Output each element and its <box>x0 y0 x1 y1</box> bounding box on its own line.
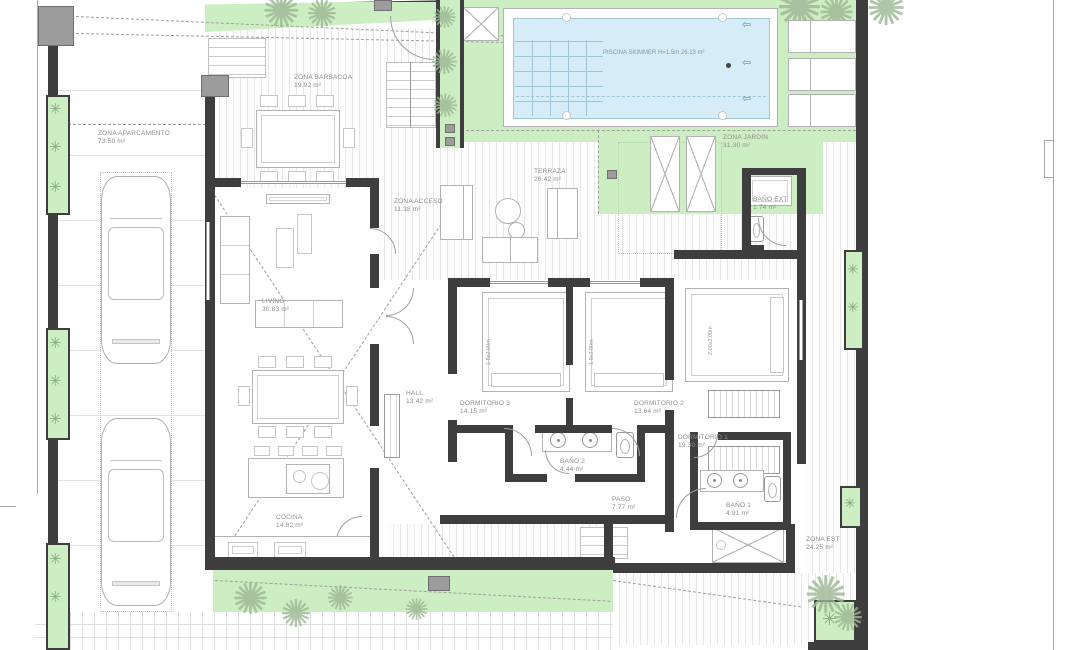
car <box>101 176 171 364</box>
plant-icon: ✳ <box>49 374 62 389</box>
label-dormitorio-1: DORMITORIO 119.30 m² <box>678 434 728 450</box>
palm-icon: ✺ <box>262 0 301 34</box>
house-wall-west <box>205 88 215 565</box>
plant-icon: ✳ <box>847 262 859 276</box>
label-cocina: COCINA14.82 m² <box>276 514 303 530</box>
sun-lounger-crossed <box>686 136 716 212</box>
palm-icon: ✺ <box>232 578 269 622</box>
utility-box-small <box>445 137 455 146</box>
wall <box>370 344 379 426</box>
entry-door-arc <box>386 288 414 316</box>
outdoor-shower-pad <box>463 7 499 41</box>
window <box>590 281 640 284</box>
bano2-wall <box>575 474 645 482</box>
staircase <box>386 62 436 128</box>
cooktop-burner <box>311 472 329 490</box>
chair <box>258 426 276 438</box>
chair <box>286 356 304 368</box>
south-wall-middle <box>440 515 670 524</box>
bedroom-north-wall <box>548 278 590 287</box>
pool-steps <box>515 40 603 116</box>
utility-box <box>38 6 74 46</box>
sheet-border-left <box>37 0 38 494</box>
palm-icon: ✺ <box>432 90 459 122</box>
utility-box-small <box>428 576 450 591</box>
dining-table <box>252 370 344 424</box>
bedroom-south-wall <box>640 425 674 433</box>
chair <box>314 426 332 438</box>
staircase-rail <box>410 62 411 128</box>
bed-dimension: 1.8x2.00m <box>486 339 492 365</box>
bano2-wall <box>505 474 547 482</box>
label-hall: HALL13.42 m² <box>406 390 433 406</box>
palm-icon: ✺ <box>432 4 457 34</box>
cooktop-burner <box>293 470 306 483</box>
access-ramp <box>35 612 613 650</box>
boundary-wall-corner <box>808 642 868 650</box>
car <box>101 418 171 606</box>
pool-lane-dashed <box>516 96 766 97</box>
bed-dormitorio-3: 1.8x2.00m <box>482 292 570 392</box>
utility-box-small <box>374 0 392 11</box>
chair <box>343 128 355 148</box>
armchair <box>297 214 312 254</box>
label-barbacoa: ZONA BARBACOA19.92 m² <box>294 74 352 90</box>
sheet-bracket-right <box>1044 140 1053 141</box>
chair <box>241 128 253 148</box>
bano-ext-wall <box>742 168 751 252</box>
bedroom-south-wall <box>448 425 505 433</box>
utility-box-small <box>445 124 455 133</box>
label-zona-est: ZONA EST24.25 m² <box>806 536 840 552</box>
chair <box>288 95 306 107</box>
window <box>241 181 346 184</box>
label-aparcamento: ZONA APARCAMENTO73.50 m² <box>98 130 170 146</box>
door-arc <box>676 488 706 518</box>
shower-drain <box>716 540 726 550</box>
chair <box>260 95 278 107</box>
window <box>490 281 548 284</box>
palm-icon: ✺ <box>866 0 906 34</box>
outdoor-armchair <box>547 188 578 239</box>
pool-ladder-mark <box>718 13 727 22</box>
palm-icon: ✺ <box>404 596 429 626</box>
pool-ladder-mark <box>562 111 571 120</box>
plant-icon: ✳ <box>49 552 62 567</box>
entry-door-arc <box>386 316 414 344</box>
pool-ladder-mark <box>718 111 727 120</box>
plant-icon: ✳ <box>49 590 62 605</box>
wall <box>786 524 795 573</box>
bano-ext-wall <box>742 168 806 175</box>
wall <box>566 398 573 428</box>
kitchen-sink <box>274 542 306 558</box>
plant-icon: ✳ <box>49 140 62 155</box>
sheet-bracket-right <box>1044 177 1053 178</box>
sink <box>733 473 748 488</box>
plant-icon: ✳ <box>844 496 856 510</box>
sink <box>582 432 598 448</box>
pool-jet-arrow-icon: ⇦ <box>742 20 751 31</box>
wall <box>665 278 674 380</box>
sofa <box>220 216 250 304</box>
floor-plan: ⇦ ⇦ ⇦ PISCINA SKIMMER H=1.5m 26.13 m² <box>0 0 1070 650</box>
garden-boundary-dashed <box>598 130 599 214</box>
outdoor-sofa <box>482 237 538 263</box>
label-jardin: ZONA JARDIN31.30 m² <box>723 134 768 150</box>
pool-jet-arrow-icon: ⇦ <box>742 58 751 69</box>
plant-icon: ✳ <box>49 102 62 117</box>
chair <box>316 95 334 107</box>
pool-ladder-mark <box>562 13 571 22</box>
armchair <box>276 228 294 268</box>
window <box>206 222 210 300</box>
sun-lounger <box>788 94 856 127</box>
dormitorio1-north-wall <box>674 250 806 259</box>
wall <box>566 287 573 365</box>
pool-drain-dot <box>726 63 731 68</box>
label-piscina: PISCINA SKIMMER H=1.5m 26.13 m² <box>603 50 705 58</box>
bed-dormitorio-2: 1.8x2.00m <box>585 292 673 392</box>
sun-lounger-crossed <box>650 136 680 212</box>
tv-console <box>266 194 330 204</box>
sheet-tick-left <box>0 506 16 507</box>
door-arc <box>612 428 640 456</box>
bano1-wall <box>690 522 791 530</box>
label-dormitorio-3: DORMITORIO 314.15 m² <box>460 400 510 416</box>
stool <box>254 446 270 456</box>
bano1-wall <box>718 432 790 440</box>
window <box>799 300 803 360</box>
palm-icon: ✺ <box>326 582 355 616</box>
chair <box>346 386 358 406</box>
label-terraza: TERRAZA26.42 m² <box>534 168 566 184</box>
wall <box>213 178 241 187</box>
chair <box>314 356 332 368</box>
sun-lounger <box>788 58 856 91</box>
planter-strip-wall <box>460 0 464 148</box>
palm-icon: ✺ <box>280 596 312 634</box>
garden-boundary-dashed <box>466 130 856 131</box>
palm-icon: ✺ <box>430 46 459 80</box>
label-acceso: ZONA ACCESO11.38 m² <box>394 198 443 214</box>
boundary-wall-south <box>205 557 615 570</box>
sink <box>707 473 722 488</box>
wall <box>448 278 457 374</box>
plant-icon: ✳ <box>49 412 62 427</box>
bed-dormitorio-1: 2.00x2.00m <box>685 288 789 382</box>
toilet <box>764 476 781 502</box>
entry-steps <box>208 38 266 78</box>
pool-jet-arrow-icon: ⇦ <box>742 94 751 105</box>
palm-icon: ✺ <box>306 0 338 34</box>
sink <box>550 432 566 448</box>
utility-box-small <box>607 170 617 179</box>
sheet-bracket-right <box>1044 140 1045 178</box>
sun-lounger <box>788 20 856 53</box>
entry-landing <box>201 75 229 97</box>
bed-dimension: 2.00x2.00m <box>708 326 714 355</box>
label-dormitorio-2: DORMITORIO 213.64 m² <box>634 400 684 416</box>
door-arc <box>504 428 532 456</box>
label-bano-2: BAÑO 24.44 m² <box>560 458 585 474</box>
label-living: LIVING30.83 m² <box>262 298 289 314</box>
bano1-wall <box>783 432 791 530</box>
label-paso: PASO7.77 m² <box>612 496 635 512</box>
wardrobe <box>708 390 780 418</box>
bed-dimension: 1.8x2.00m <box>589 339 595 365</box>
label-bano-ext: BAÑO EXT1.74 m² <box>753 196 787 212</box>
plant-icon: ✳ <box>822 610 837 628</box>
plant-icon: ✳ <box>49 180 62 195</box>
dining-table <box>256 110 340 168</box>
boundary-wall-south <box>613 563 795 573</box>
chair <box>258 356 276 368</box>
oven <box>228 542 258 558</box>
plant-icon: ✳ <box>49 336 62 351</box>
outdoor-table-round <box>495 198 521 224</box>
label-bano-1: BAÑO 14.91 m² <box>726 502 751 518</box>
parking-dashed-line <box>58 124 206 125</box>
wall <box>370 468 379 565</box>
plant-icon: ✳ <box>847 300 859 314</box>
bedroom-north-wall <box>448 278 490 287</box>
outdoor-armchair <box>440 185 473 240</box>
sheet-border-right <box>1053 0 1054 650</box>
stool <box>278 446 294 456</box>
hall-closet <box>384 394 400 458</box>
bano-ext-wall <box>742 245 764 252</box>
stool <box>326 446 342 456</box>
stool <box>302 446 318 456</box>
wall <box>370 254 379 288</box>
bedroom-south-wall <box>535 425 612 433</box>
wall <box>370 178 379 228</box>
chair <box>286 426 304 438</box>
chair <box>238 386 250 406</box>
